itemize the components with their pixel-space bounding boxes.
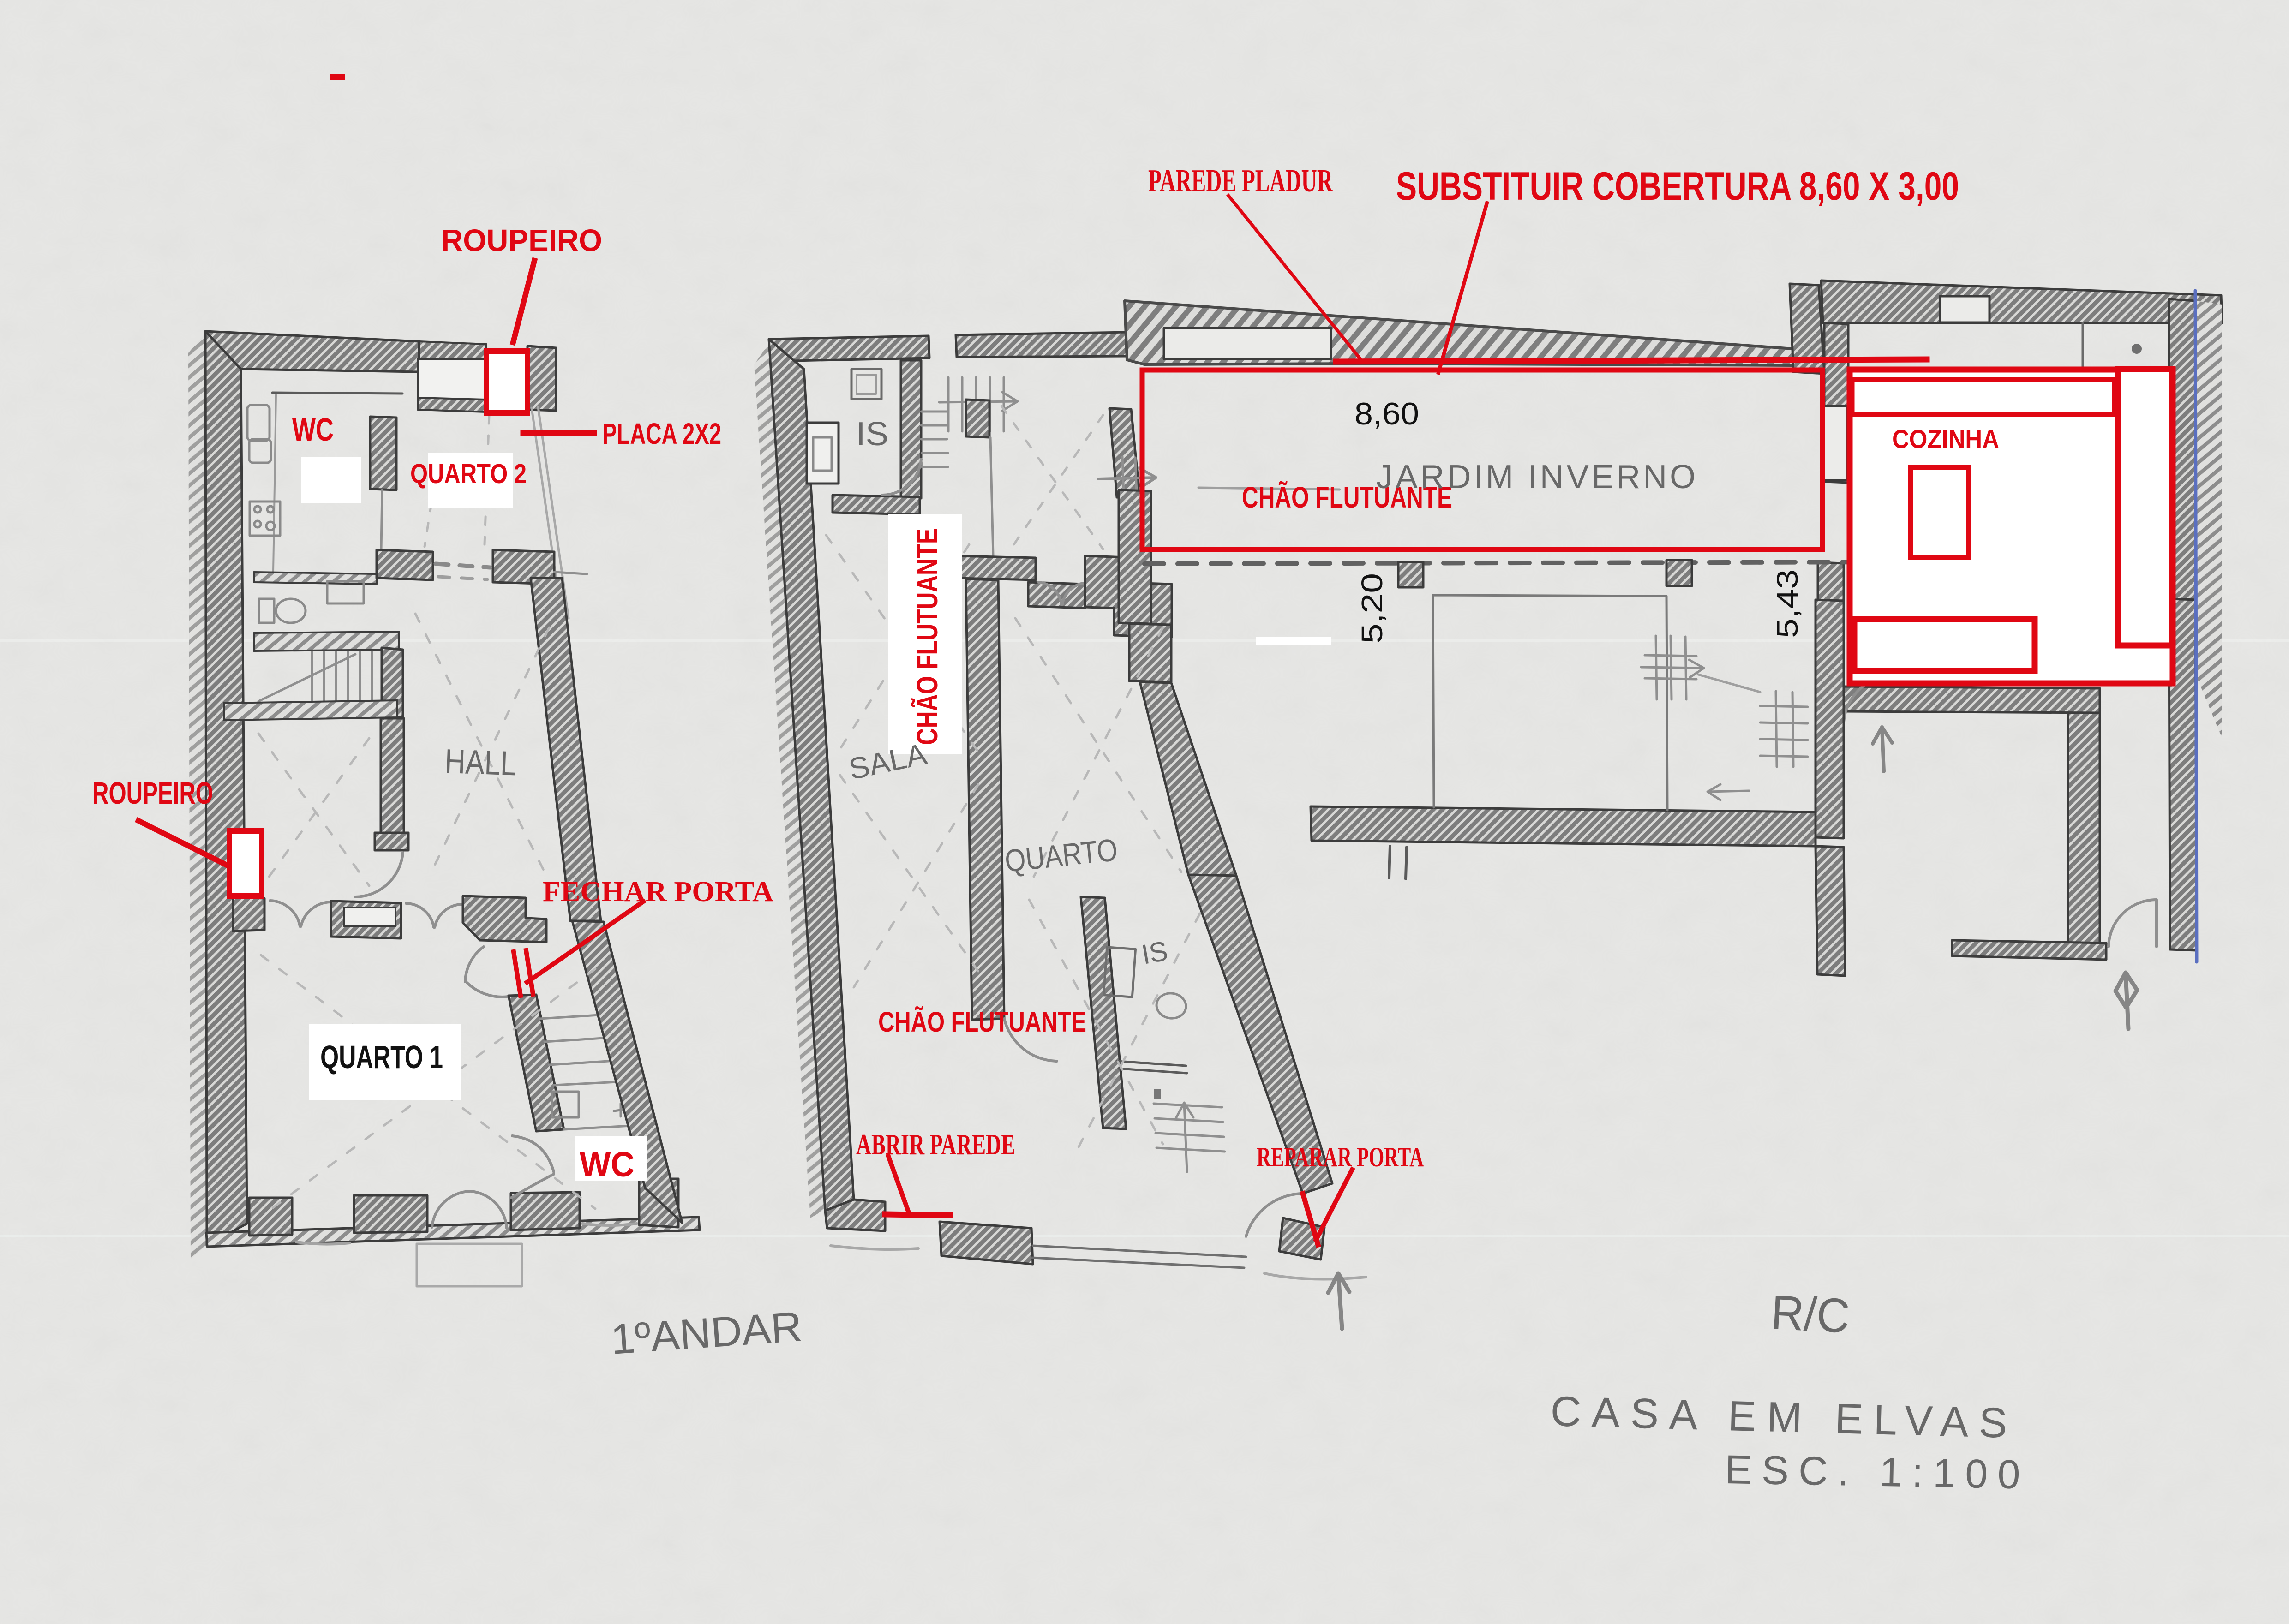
svg-text:QUARTO 2: QUARTO 2 bbox=[410, 459, 527, 489]
svg-text:IS: IS bbox=[1139, 935, 1170, 970]
svg-text:ROUPEIRO: ROUPEIRO bbox=[92, 776, 213, 811]
svg-text:WC: WC bbox=[292, 412, 334, 448]
svg-text:JARDIM INVERNO: JARDIM INVERNO bbox=[1376, 459, 1696, 496]
svg-text:R/C: R/C bbox=[1770, 1285, 1851, 1343]
svg-text:FECHAR PORTA: FECHAR PORTA bbox=[543, 876, 773, 908]
svg-text:CHÃO FLUTUANTE: CHÃO FLUTUANTE bbox=[878, 1006, 1086, 1038]
svg-text:HALL: HALL bbox=[444, 742, 517, 782]
svg-text:SUBSTITUIR COBERTURA 8,60 X 3,: SUBSTITUIR COBERTURA 8,60 X 3,00 bbox=[1396, 164, 1959, 209]
svg-text:QUARTO 1: QUARTO 1 bbox=[320, 1039, 443, 1075]
svg-text:ROUPEIRO: ROUPEIRO bbox=[441, 223, 602, 258]
svg-text:5,43: 5,43 bbox=[1771, 569, 1804, 638]
svg-text:ABRIR PAREDE: ABRIR PAREDE bbox=[856, 1128, 1015, 1161]
svg-text:8,60: 8,60 bbox=[1354, 396, 1419, 431]
svg-text:REPARAR PORTA: REPARAR PORTA bbox=[1257, 1142, 1424, 1172]
svg-text:CHÃO FLUTUANTE: CHÃO FLUTUANTE bbox=[911, 528, 944, 745]
svg-text:COZINHA: COZINHA bbox=[1892, 424, 1999, 454]
svg-text:IS: IS bbox=[856, 416, 888, 453]
svg-text:PLACA 2X2: PLACA 2X2 bbox=[602, 417, 721, 450]
svg-text:PAREDE PLADUR: PAREDE PLADUR bbox=[1148, 163, 1333, 199]
svg-text:WC: WC bbox=[580, 1145, 635, 1184]
svg-text:5,20: 5,20 bbox=[1355, 573, 1389, 644]
